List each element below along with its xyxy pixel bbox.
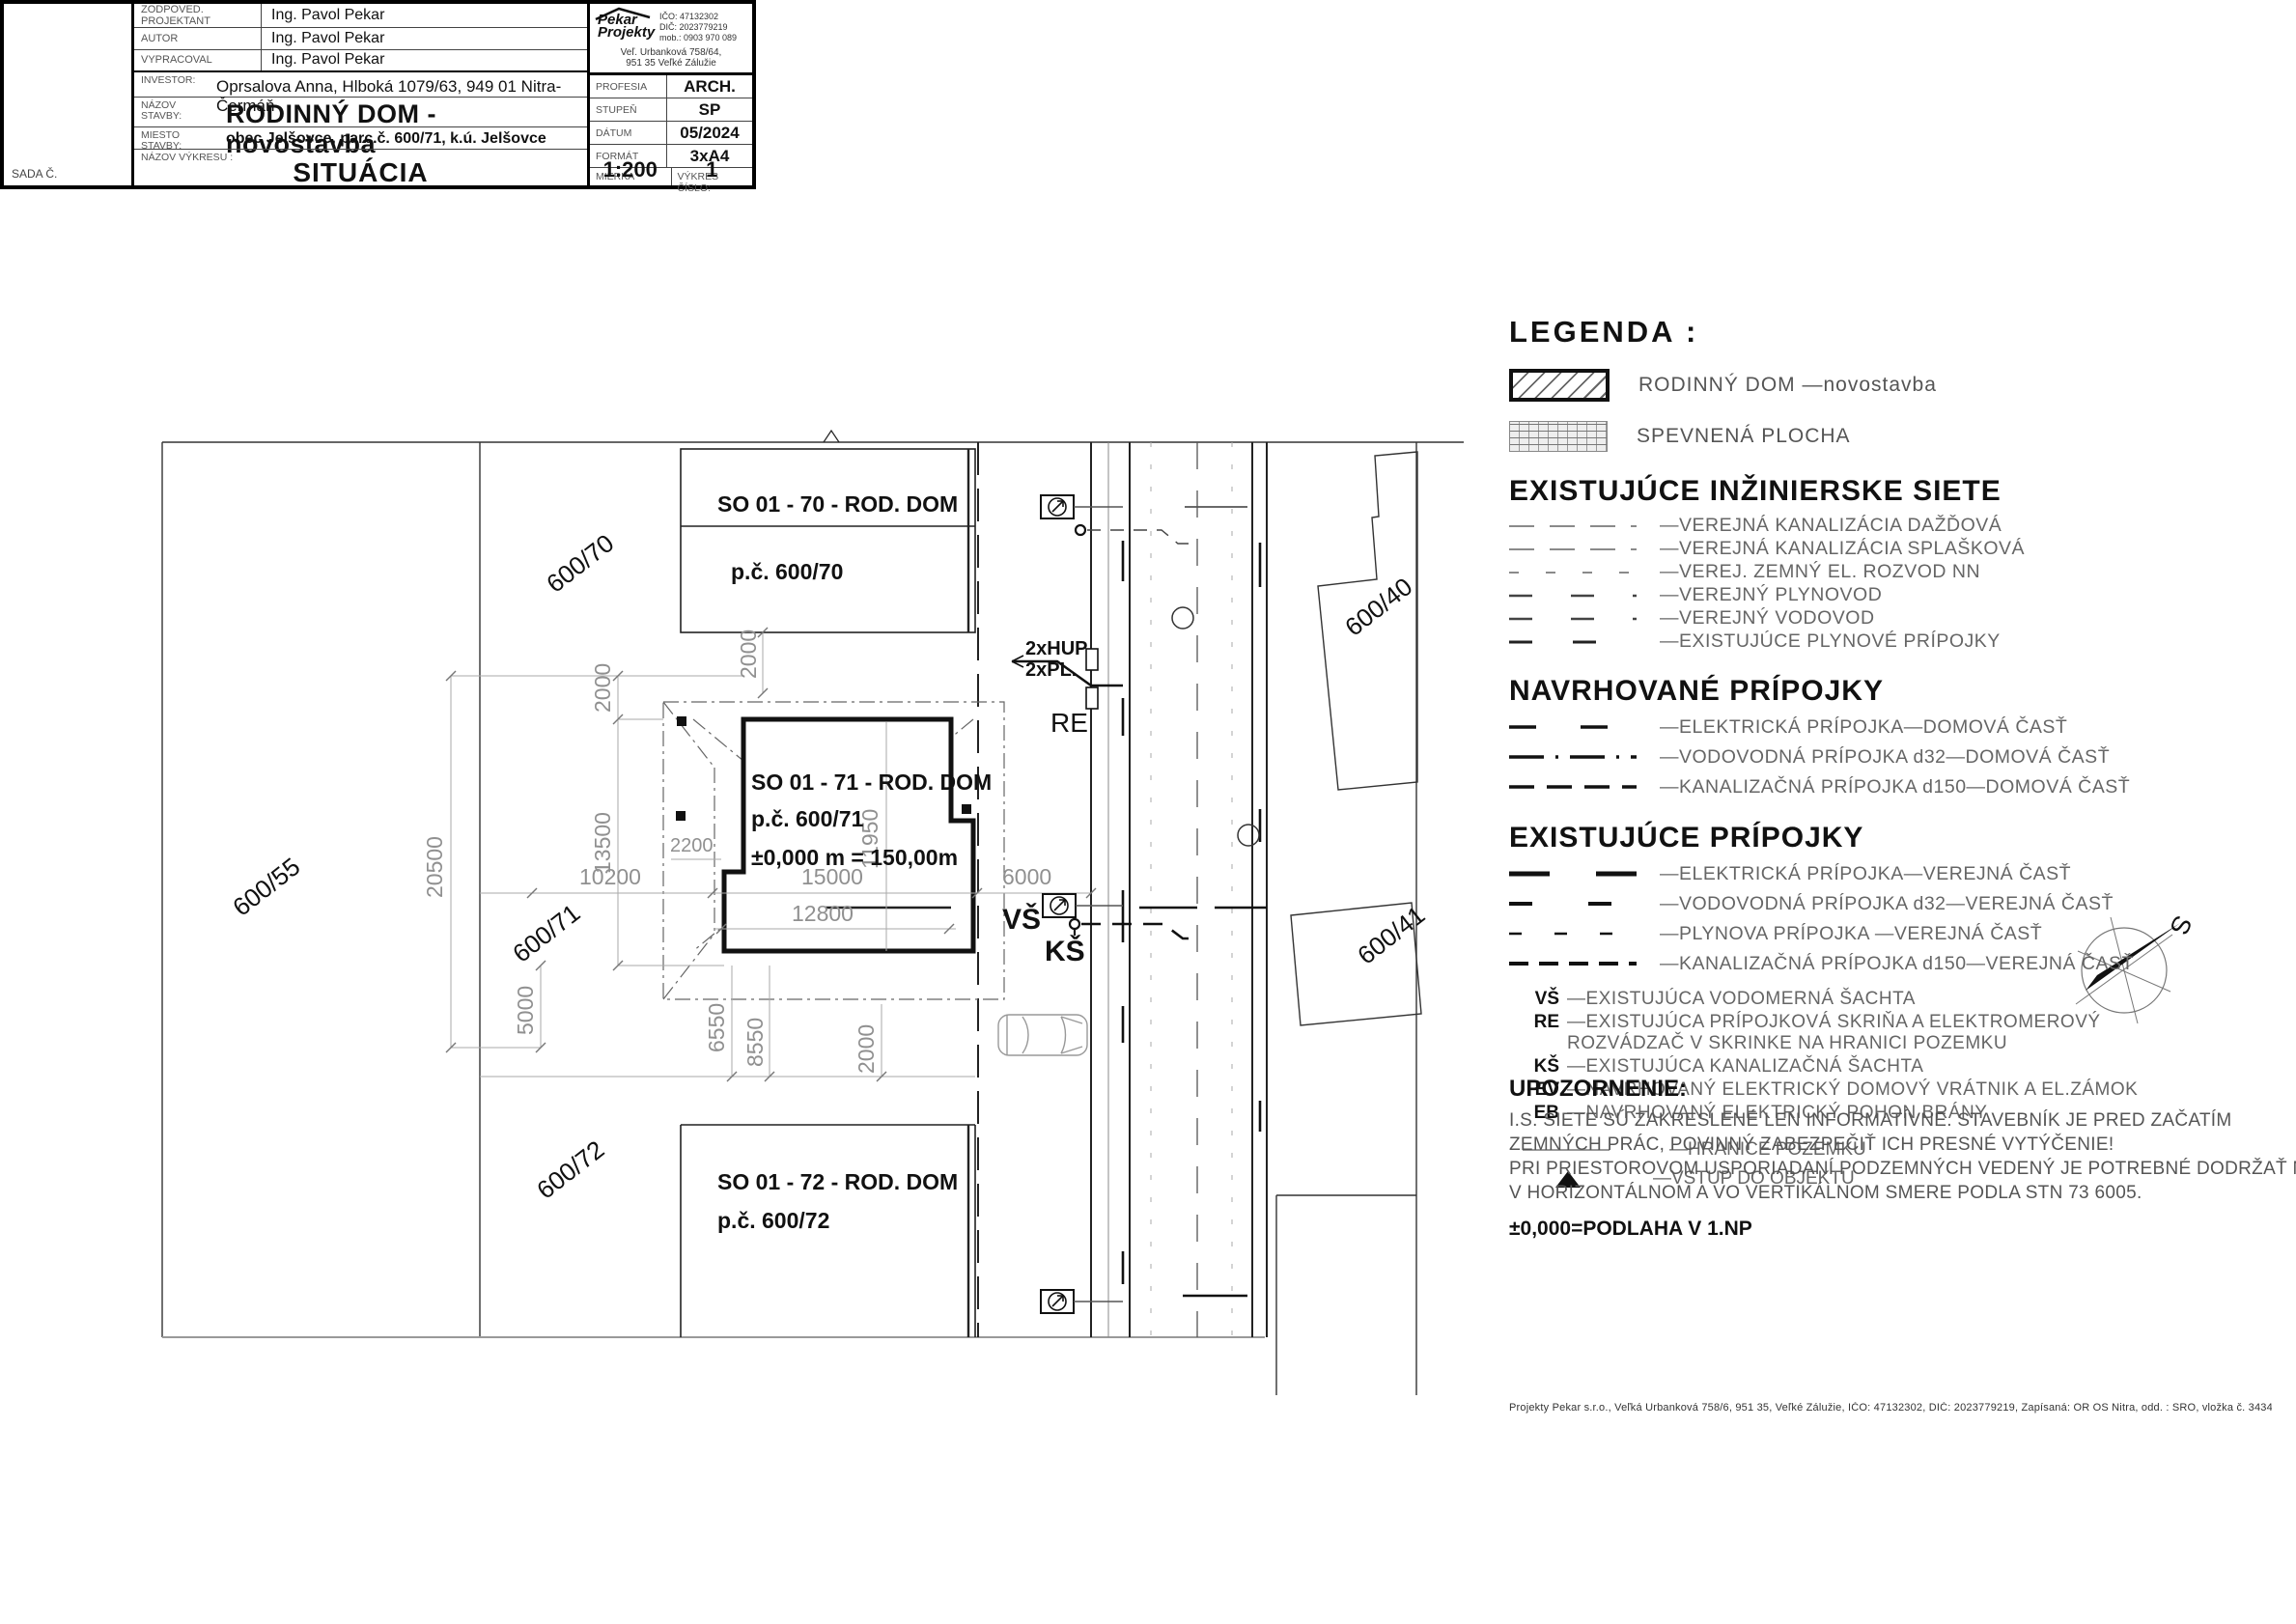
legend: LEGENDA : RODINNÝ DOM —novostavba SPEVNE… xyxy=(1509,315,2293,1190)
legend-items-existing-networks: —VEREJNÁ KANALIZÁCIA DAŽĎOVÁ —VEREJNÁ KA… xyxy=(1509,516,2293,652)
swatch-label: SPEVNENÁ PLOCHA xyxy=(1637,425,1851,448)
dim-20500: 20500 xyxy=(422,836,447,898)
legend-item: —VEREJNÁ KANALIZÁCIA SPLAŠKOVÁ xyxy=(1509,539,2293,559)
abbr-text: —EXISTUJÚCA VODOMERNÁ ŠACHTA xyxy=(1567,989,1916,1010)
company-address-1: Veľ. Urbanková 758/64, xyxy=(590,47,752,58)
line-sample-icon xyxy=(1509,568,1637,577)
dim-12800: 12800 xyxy=(792,901,854,926)
legend-item-label: —KANALIZAČNÁ PRÍPOJKA d150—DOMOVÁ ČASŤ xyxy=(1660,776,2130,798)
abbr-row-re: RE —EXISTUJÚCA PRÍPOJKOVÁ SKRIŇA A ELEKT… xyxy=(1509,1012,2293,1033)
legend-item: —VEREJNÝ PLYNOVOD xyxy=(1509,585,2293,605)
company-phone: mob.: 0903 970 089 xyxy=(659,33,737,43)
line-sample-icon xyxy=(1509,958,1637,969)
so72-title: SO 01 - 72 - ROD. DOM xyxy=(717,1169,958,1194)
legend-items-existing-connections: —ELEKTRICKÁ PRÍPOJKA—VEREJNÁ ČASŤ —VODOV… xyxy=(1509,862,2293,975)
dim-5000: 5000 xyxy=(513,986,538,1035)
label-2xpl: 2xPL. xyxy=(1025,659,1077,681)
line-sample-icon xyxy=(1509,898,1637,910)
dim-6550: 6550 xyxy=(704,1003,729,1052)
company-address-2: 951 35 Veľké Zálužie xyxy=(590,58,752,69)
line-sample-icon xyxy=(1509,782,1637,792)
dim-13500: 13500 xyxy=(590,812,615,874)
row-investor: INVESTOR: Oprsalova Anna, Hlboká 1079/63… xyxy=(134,72,587,98)
legend-item-label: —VEREJNÝ PLYNOVOD xyxy=(1660,584,1882,606)
notice-block: UPOZORNENIE: I.S. SIETE SÚ ZAKRESLENÉ LE… xyxy=(1509,1076,2296,1241)
legend-item-label: —VEREJ. ZEMNÝ EL. ROZVOD NN xyxy=(1660,561,1980,583)
car-drawing xyxy=(998,1015,1087,1055)
label-re: RE xyxy=(1050,708,1088,738)
parcel-600-72: 600/72 xyxy=(531,1134,609,1205)
company-logo-cell: Pekar Projekty IČO: 47132302 DIČ: 202377… xyxy=(590,4,752,75)
swatch-label: RODINNÝ DOM —novostavba xyxy=(1638,374,1937,397)
row-drawing-name: NÁZOV VÝKRESU : SITUÁCIA xyxy=(134,150,587,186)
parcel-600-41: 600/41 xyxy=(1352,900,1430,970)
so72-parcel: p.č. 600/72 xyxy=(717,1208,829,1233)
abbr-row-vs: VŠ —EXISTUJÚCA VODOMERNÁ ŠACHTA xyxy=(1509,989,2293,1010)
so71-title: SO 01 - 71 - ROD. DOM xyxy=(751,770,992,795)
legend-section-existing-connections: EXISTUJÚCE PRÍPOJKY xyxy=(1509,822,2293,854)
line-sample-icon xyxy=(1509,614,1637,624)
parcel-600-70: 600/70 xyxy=(541,528,619,599)
line-sample-icon xyxy=(1509,591,1637,601)
legend-item: —KANALIZAČNÁ PRÍPOJKA d150—DOMOVÁ ČASŤ xyxy=(1509,775,2293,798)
legend-swatch-house: RODINNÝ DOM —novostavba xyxy=(1509,369,2293,402)
legend-item: —ELEKTRICKÁ PRÍPOJKA—VEREJNÁ ČASŤ xyxy=(1509,862,2293,885)
title-block-set-column: SADA Č. xyxy=(4,4,134,185)
abbr-row-ks: KŠ —EXISTUJÚCA KANALIZAČNÁ ŠACHTA xyxy=(1509,1056,2293,1078)
legend-item: —PLYNOVA PRÍPOJKA —VEREJNÁ ČASŤ xyxy=(1509,922,2293,945)
legend-item-label: —KANALIZAČNÁ PRÍPOJKA d150—VEREJNÁ ČASŤ xyxy=(1660,953,2134,975)
legend-item-label: —ELEKTRICKÁ PRÍPOJKA—VEREJNÁ ČASŤ xyxy=(1660,863,2071,885)
line-sample-icon xyxy=(1509,752,1637,762)
row-scale-number: MIERKA 1:200 VÝKRES ČÍSLO: 1 xyxy=(590,168,752,185)
company-dic: DIČ: 2023779219 xyxy=(659,22,737,33)
legend-item: —VODOVODNÁ PRÍPOJKA d32—VEREJNÁ ČASŤ xyxy=(1509,892,2293,915)
drawing-name-value: SITUÁCIA xyxy=(134,157,587,188)
set-number-label: SADA Č. xyxy=(12,167,57,181)
line-sample-icon xyxy=(1509,722,1637,732)
parcel-600-55: 600/55 xyxy=(227,852,305,922)
scale-cell: MIERKA 1:200 xyxy=(590,168,671,185)
legend-section-existing-networks: EXISTUJÚCE INŽINIERSKE SIETE xyxy=(1509,475,2293,508)
road-utility-ticks xyxy=(1123,541,1260,1284)
road-lines xyxy=(1091,442,1267,1337)
level-note: ±0,000=PODLAHA V 1.NP xyxy=(1509,1218,2296,1241)
scale-value: 1:200 xyxy=(590,157,671,182)
abbr: KŠ xyxy=(1509,1056,1559,1078)
label-ks: KŠ xyxy=(1045,935,1085,967)
row-project-name: NÁZOV STAVBY: RODINNÝ DOM - novostavba xyxy=(134,98,587,127)
legend-section-proposed: NAVRHOVANÉ PRÍPOJKY xyxy=(1509,675,2293,708)
building-so70 xyxy=(681,431,975,632)
legend-item-label: —ELEKTRICKÁ PRÍPOJKA—DOMOVÁ ČASŤ xyxy=(1660,716,2067,739)
abbr-text: —EXISTUJÚCA PRÍPOJKOVÁ SKRIŇA A ELEKTROM… xyxy=(1567,1012,2101,1033)
legend-item: —VEREJNÝ VODOVOD xyxy=(1509,608,2293,629)
company-name: Pekar Projekty xyxy=(598,14,655,39)
field-label: STAVBY: xyxy=(141,110,182,122)
dim-6000: 6000 xyxy=(1002,864,1051,889)
notice-line: PRI PRIESTOROVOM USPORIADANÍ PODZEMNÝCH … xyxy=(1509,1157,2296,1181)
brick-swatch-icon xyxy=(1509,421,1608,452)
building-labels: SO 01 - 70 - ROD. DOM p.č. 600/70 SO 01 … xyxy=(717,491,992,1233)
field-label: INVESTOR: xyxy=(141,75,195,86)
legend-item: —VODOVODNÁ PRÍPOJKA d32—DOMOVÁ ČASŤ xyxy=(1509,745,2293,769)
line-sample-icon xyxy=(1509,637,1637,647)
so70-parcel: p.č. 600/70 xyxy=(731,559,843,584)
legend-item: —VEREJNÁ KANALIZÁCIA DAŽĎOVÁ xyxy=(1509,516,2293,536)
legend-item-label: —VODOVODNÁ PRÍPOJKA d32—VEREJNÁ ČASŤ xyxy=(1660,893,2114,915)
notice-line: ZEMNÝCH PRÁC, POVINNÝ ZABEZPEČIŤ ICH PRE… xyxy=(1509,1133,2296,1157)
company-ico: IČO: 47132302 xyxy=(659,12,737,22)
line-sample-icon xyxy=(1509,521,1637,531)
drawing-number-value: 1 xyxy=(672,157,753,182)
company-name-2: Projekty xyxy=(598,24,655,41)
legend-item: —VEREJ. ZEMNÝ EL. ROZVOD NN xyxy=(1509,562,2293,582)
line-sample-icon xyxy=(1509,545,1637,554)
abbr-row-re-line2: ROZVÁDZAČ V SKRINKE NA HRANICI POZEMKU xyxy=(1567,1033,2293,1054)
dim-2200: 2200 xyxy=(670,835,714,856)
site-location-value: obec Jelšovce, parc.č. 600/71, k.ú. Jelš… xyxy=(226,130,546,148)
legend-item-label: —VEREJNÁ KANALIZÁCIA SPLAŠKOVÁ xyxy=(1660,538,2025,560)
legend-swatch-paved: SPEVNENÁ PLOCHA xyxy=(1509,421,2293,452)
legend-item: —ELEKTRICKÁ PRÍPOJKA—DOMOVÁ ČASŤ xyxy=(1509,715,2293,739)
legend-item-label: —VEREJNÁ KANALIZÁCIA DAŽĎOVÁ xyxy=(1660,515,2002,537)
legend-item-label: —VEREJNÝ VODOVOD xyxy=(1660,607,1875,630)
utility-connections xyxy=(1074,507,1267,1302)
so70-title: SO 01 - 70 - ROD. DOM xyxy=(717,491,958,517)
legend-item-label: —EXISTUJÚCE PLYNOVÉ PRÍPOJKY xyxy=(1660,630,2001,653)
water-shaft-symbol-top xyxy=(1041,495,1074,518)
legend-item-label: —VODOVODNÁ PRÍPOJKA d32—DOMOVÁ ČASŤ xyxy=(1660,746,2110,769)
legend-items-proposed: —ELEKTRICKÁ PRÍPOJKA—DOMOVÁ ČASŤ —VODOVO… xyxy=(1509,715,2293,798)
company-ids: IČO: 47132302 DIČ: 2023779219 mob.: 0903… xyxy=(659,12,737,43)
water-shaft-symbol-bottom xyxy=(1041,1290,1074,1313)
dim-2000-top: 2000 xyxy=(736,630,761,679)
drawing-number-cell: VÝKRES ČÍSLO: 1 xyxy=(671,168,753,185)
abbr: RE xyxy=(1509,1012,1559,1033)
notice-title: UPOZORNENIE: xyxy=(1509,1076,2296,1103)
so71-parcel: p.č. 600/71 xyxy=(751,806,864,831)
notice-line: I.S. SIETE SÚ ZAKRESLENÉ LEN INFORMATÍVN… xyxy=(1509,1108,2296,1133)
abbr-text: —EXISTUJÚCA KANALIZAČNÁ ŠACHTA xyxy=(1567,1056,1923,1078)
company-footer-line: Projekty Pekar s.r.o., Veľká Urbanková 7… xyxy=(1509,1402,2272,1414)
abbr: VŠ xyxy=(1509,989,1559,1010)
parcel-600-71: 600/71 xyxy=(507,898,585,968)
so71-level: ±0,000 m = 150,00m xyxy=(751,845,958,870)
manhole-circles xyxy=(1172,607,1259,846)
row-site-location: MIESTO STAVBY: obec Jelšovce, parc.č. 60… xyxy=(134,127,587,150)
dim-2000-left: 2000 xyxy=(590,663,615,713)
label-vs: VŠ xyxy=(1002,903,1041,936)
dim-2000-bottom: 2000 xyxy=(854,1024,879,1074)
hatch-swatch-icon xyxy=(1509,369,1610,402)
dim-8550: 8550 xyxy=(742,1018,768,1067)
legend-title: LEGENDA : xyxy=(1509,315,2293,350)
legend-item: —EXISTUJÚCE PLYNOVÉ PRÍPOJKY xyxy=(1509,631,2293,652)
water-shaft-symbol-vs xyxy=(1043,894,1076,917)
label-2xhup: 2xHUP xyxy=(1025,638,1087,659)
legend-item-label: —PLYNOVA PRÍPOJKA —VEREJNÁ ČASŤ xyxy=(1660,923,2042,945)
line-sample-icon xyxy=(1509,928,1637,939)
line-sample-icon xyxy=(1509,868,1637,880)
legend-item: —KANALIZAČNÁ PRÍPOJKA d150—VEREJNÁ ČASŤ xyxy=(1509,952,2293,975)
notice-line: V HORIZONTÁLNOM A VO VERTIKÁLNOM SMERE P… xyxy=(1509,1181,2296,1205)
company-address: Veľ. Urbanková 758/64, 951 35 Veľké Zálu… xyxy=(590,47,752,69)
